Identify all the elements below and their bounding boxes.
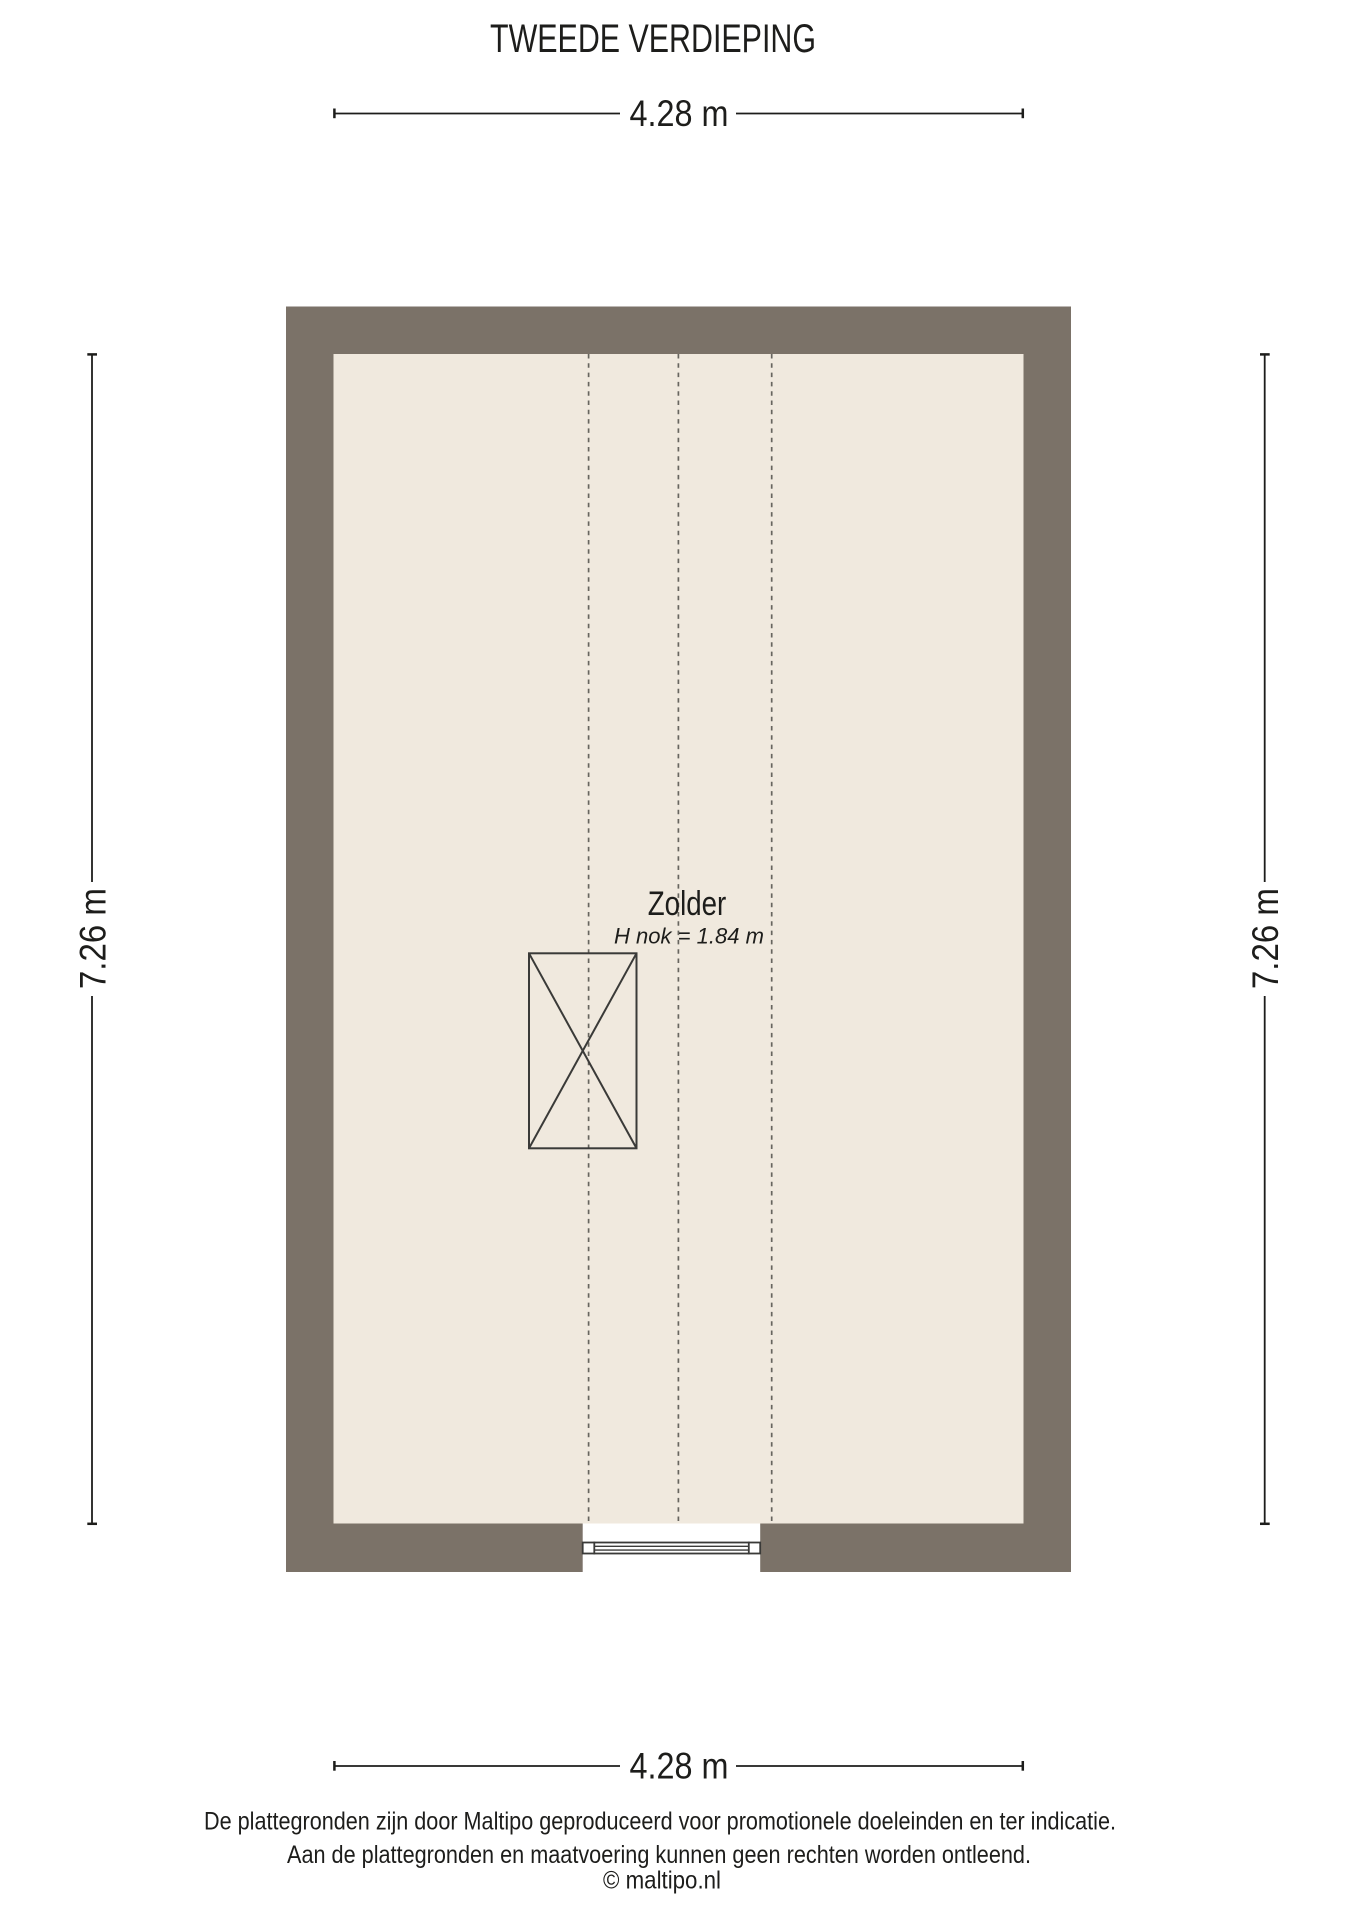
svg-text:7.26 m: 7.26 m — [73, 888, 114, 989]
svg-text:H nok = 1.84 m: H nok = 1.84 m — [614, 924, 764, 949]
svg-text:4.28 m: 4.28 m — [630, 1746, 729, 1787]
svg-text:De plattegronden zijn door Mal: De plattegronden zijn door Maltipo gepro… — [204, 1808, 1116, 1836]
svg-text:7.26 m: 7.26 m — [1245, 888, 1286, 989]
svg-text:4.28 m: 4.28 m — [630, 93, 729, 134]
svg-text:© maltipo.nl: © maltipo.nl — [603, 1867, 721, 1895]
svg-text:Aan de plattegronden en maatvo: Aan de plattegronden en maatvoering kunn… — [287, 1841, 1031, 1869]
svg-text:Zolder: Zolder — [648, 885, 727, 923]
svg-text:TWEEDE VERDIEPING: TWEEDE VERDIEPING — [490, 17, 816, 61]
